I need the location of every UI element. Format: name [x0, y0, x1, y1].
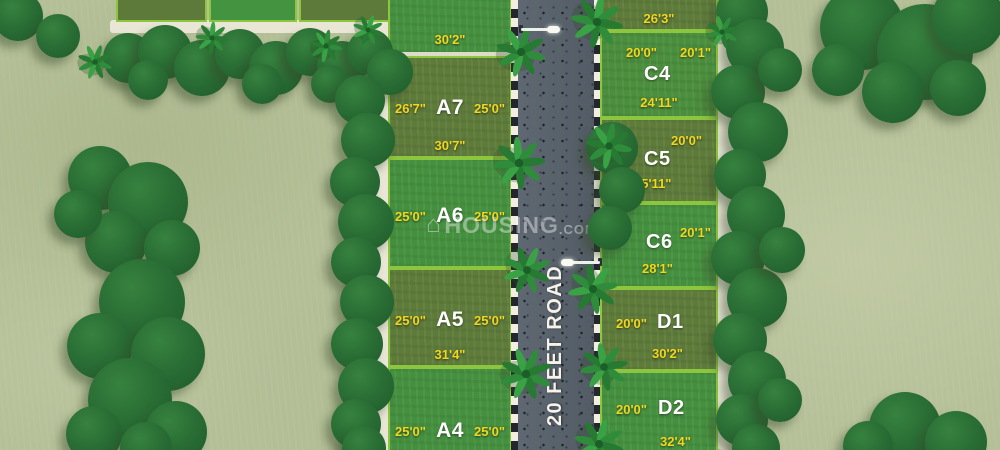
tree-cluster [120, 422, 172, 450]
plot-label: A7 [436, 96, 464, 120]
tree-cluster [36, 14, 80, 58]
tree-cluster [174, 40, 230, 96]
dimension-label: 26'3" [644, 11, 675, 26]
tree-cluster [145, 401, 207, 450]
plot-c4: 20'0" 20'1" C4 24'11" [600, 31, 718, 118]
dimension-label: 25'0" [395, 209, 426, 224]
dimension-label: 20'0" [616, 402, 647, 417]
dimension-label: 25'0" [395, 313, 426, 328]
plot-label: C4 [644, 63, 671, 86]
plot-a4: 25'0" A4 25'0" [388, 367, 512, 450]
tree-cluster [758, 378, 802, 422]
dimension-label: 20'0" [671, 133, 702, 148]
tree-cluster [932, 0, 1000, 54]
plot-c5: 20'0" C5 25'11" [600, 118, 718, 203]
streetlight-icon [561, 257, 602, 267]
tree-cluster [877, 4, 973, 100]
tree-cluster [88, 358, 172, 442]
tree-cluster [66, 406, 122, 450]
plot-a5: 25'0" A5 25'0" 31'4" [388, 268, 512, 367]
dimension-label: 26'7" [395, 101, 426, 116]
tree-cluster [103, 33, 153, 83]
tree-cluster [759, 227, 805, 273]
tree-cluster [925, 411, 987, 450]
tree-cluster [85, 211, 147, 273]
tree-cluster [812, 44, 864, 96]
watermark: ⌂ HOUSING .COM [426, 212, 597, 238]
dimension-label: 25'11" [634, 176, 671, 191]
streetlight-icon [519, 24, 560, 34]
plot-label: A4 [436, 419, 464, 443]
dimension-label: 20'1" [680, 225, 711, 240]
dimension-label: 20'1" [680, 45, 711, 60]
plot-strip [299, 0, 390, 22]
tree-cluster [930, 60, 986, 116]
tree-cluster [869, 392, 941, 450]
dimension-label: 30'2" [435, 32, 466, 47]
tree-cluster [138, 25, 192, 79]
road-name: 20 FEET ROAD [512, 250, 600, 440]
dimension-label: 25'0" [474, 101, 505, 116]
tree-cluster [820, 0, 904, 70]
tree-cluster [215, 29, 265, 79]
dimension-label: 25'0" [474, 424, 505, 439]
tree-cluster [131, 317, 205, 391]
tree-cluster [843, 421, 893, 450]
dimension-label: 20'0" [616, 316, 647, 331]
tree-cluster [317, 41, 367, 91]
site-plan-map: 30'2" 26'7" A7 25'0" 30'7" 25'0" A6 25'0… [0, 0, 1000, 450]
dimension-label: 24'11" [640, 95, 677, 110]
dimension-label: 28'1" [642, 261, 673, 276]
plot-a7: 26'7" A7 25'0" 30'7" [388, 56, 512, 158]
walkway-path-right [715, 0, 741, 450]
tree-cluster [144, 220, 200, 276]
plot-d1: 20'0" D1 30'2" [600, 288, 718, 371]
tree-cluster [0, 0, 43, 41]
house-icon: ⌂ [426, 212, 442, 238]
plot-c6: C6 20'1" 28'1" [600, 203, 718, 288]
top-plot-strips [116, 0, 392, 22]
plot-column-right: 26'3" 20'0" 20'1" C4 24'11" 20'0" C5 25'… [600, 0, 718, 450]
watermark-text: HOUSING [445, 212, 559, 238]
tree-cluster [758, 48, 802, 92]
tree-cluster [67, 313, 133, 379]
tree-cluster [242, 64, 282, 104]
dimension-label: 30'2" [652, 346, 683, 361]
tree-cluster [862, 61, 924, 123]
tree-cluster [99, 259, 185, 345]
dimension-label: 25'0" [474, 313, 505, 328]
tree-cluster [286, 28, 334, 76]
plot-label: D1 [657, 311, 684, 334]
watermark-suffix: .COM [559, 223, 597, 236]
plot-strip [209, 0, 296, 22]
tree-cluster [108, 162, 188, 242]
plot-strip [116, 0, 207, 22]
plot-above-a7: 30'2" [388, 0, 512, 56]
dimension-label: 20'0" [626, 45, 657, 60]
tree-cluster [249, 41, 303, 95]
dimension-label: 31'4" [435, 347, 466, 362]
tree-cluster [54, 190, 102, 238]
plot-label: C5 [644, 148, 671, 171]
plot-label: A5 [436, 308, 464, 332]
palm-tree-icon [72, 39, 117, 84]
tree-cluster [311, 65, 349, 103]
plot-above-c4: 26'3" [600, 0, 718, 31]
plot-label: D2 [658, 397, 685, 420]
plot-d2: 20'0" D2 32'4" [600, 371, 718, 450]
dimension-label: 30'7" [435, 138, 466, 153]
dimension-label: 25'0" [395, 424, 426, 439]
plot-label: C6 [646, 231, 673, 254]
dimension-label: 32'4" [660, 434, 691, 449]
tree-cluster [68, 146, 132, 210]
tree-cluster [128, 60, 168, 100]
